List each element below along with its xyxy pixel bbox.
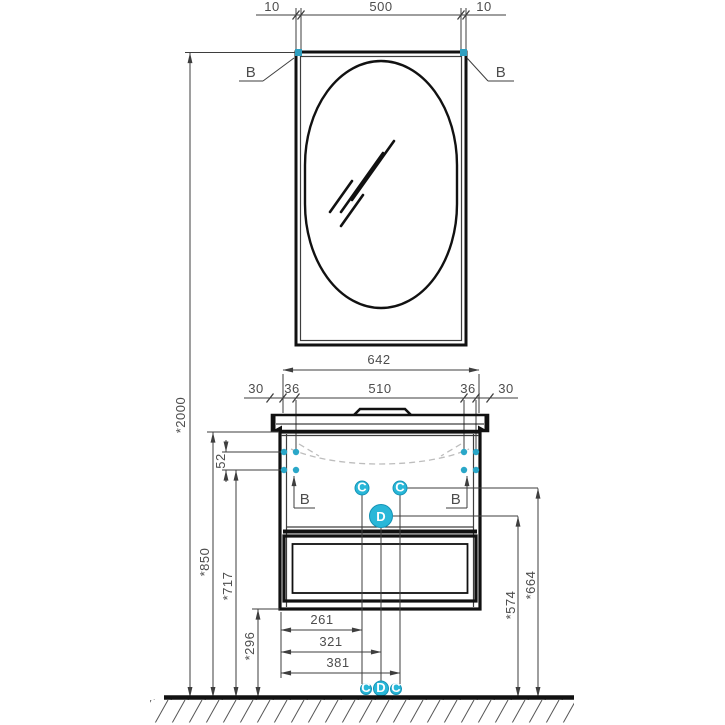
svg-text:B: B	[496, 64, 507, 81]
outlet-c-left: C	[355, 480, 369, 496]
svg-text:30: 30	[248, 381, 263, 396]
floor-hatching	[150, 700, 574, 723]
svg-text:D: D	[376, 509, 385, 524]
mirror-oval-glass	[305, 61, 457, 308]
dim-height-holes: *717	[220, 471, 236, 698]
bottom-drawer-front	[284, 536, 476, 601]
svg-text:*717: *717	[220, 572, 235, 601]
dim-label-glass-width: 500	[369, 0, 392, 14]
mirror-outer-frame	[296, 52, 466, 345]
svg-text:C: C	[391, 680, 401, 695]
drain-d: D	[370, 505, 393, 528]
svg-text:30: 30	[498, 381, 513, 396]
svg-text:321: 321	[319, 634, 342, 649]
floor-ground-line	[150, 698, 574, 723]
callout-mirror-b-right: B	[467, 58, 514, 81]
dim-height-outlets: *664	[523, 489, 538, 698]
svg-text:510: 510	[368, 381, 391, 396]
svg-text:261: 261	[310, 612, 333, 627]
mounting-hole-dots	[281, 449, 479, 473]
mirror-front-view	[295, 49, 467, 345]
dim-label-frame-left: 10	[264, 0, 279, 14]
vanity-mirror-dimension-drawing: 10 500 10 B B *2000 64	[0, 0, 725, 725]
svg-text:C: C	[361, 680, 371, 695]
mirror-shine-marks	[330, 141, 394, 226]
svg-text:C: C	[395, 480, 405, 495]
callout-holes-b-right: B	[446, 476, 467, 508]
svg-text:B: B	[246, 64, 257, 81]
svg-text:D: D	[376, 680, 385, 695]
dim-label-frame-right: 10	[476, 0, 491, 14]
callout-mirror-b-left: B	[239, 58, 294, 81]
svg-text:C: C	[357, 480, 367, 495]
dim-mirror-width: 10 500 10	[256, 0, 506, 51]
dim-bottom-offsets: 261 321 381	[281, 612, 400, 678]
hidden-basin-outline	[291, 449, 469, 464]
dim-height-underside: *296	[242, 609, 280, 697]
svg-text:36: 36	[284, 381, 299, 396]
callout-holes-b-left: B	[294, 476, 315, 508]
svg-text:642: 642	[367, 352, 390, 367]
mirror-mount-marker-left	[295, 49, 302, 56]
svg-text:*296: *296	[242, 632, 257, 661]
dim-height-worktop: *850	[197, 432, 279, 697]
dim-hole-row-gap: 52	[213, 440, 281, 482]
mirror-inner-frame	[301, 57, 462, 341]
svg-text:B: B	[300, 491, 311, 508]
washbasin-top	[272, 409, 488, 431]
technical-drawing-page: 10 500 10 B B *2000 64	[0, 0, 725, 725]
svg-text:*850: *850	[197, 548, 212, 577]
svg-text:*664: *664	[523, 571, 538, 600]
svg-text:381: 381	[326, 655, 349, 670]
dim-height-drain: *574	[503, 517, 518, 698]
svg-text:*574: *574	[503, 591, 518, 620]
svg-text:*2000: *2000	[173, 397, 188, 433]
svg-text:B: B	[451, 491, 462, 508]
outlet-c-right: C	[393, 480, 407, 496]
svg-text:36: 36	[460, 381, 475, 396]
svg-text:52: 52	[213, 453, 228, 468]
mirror-mount-marker-right	[460, 49, 467, 56]
floor-connection-markers: C D C	[361, 680, 402, 696]
